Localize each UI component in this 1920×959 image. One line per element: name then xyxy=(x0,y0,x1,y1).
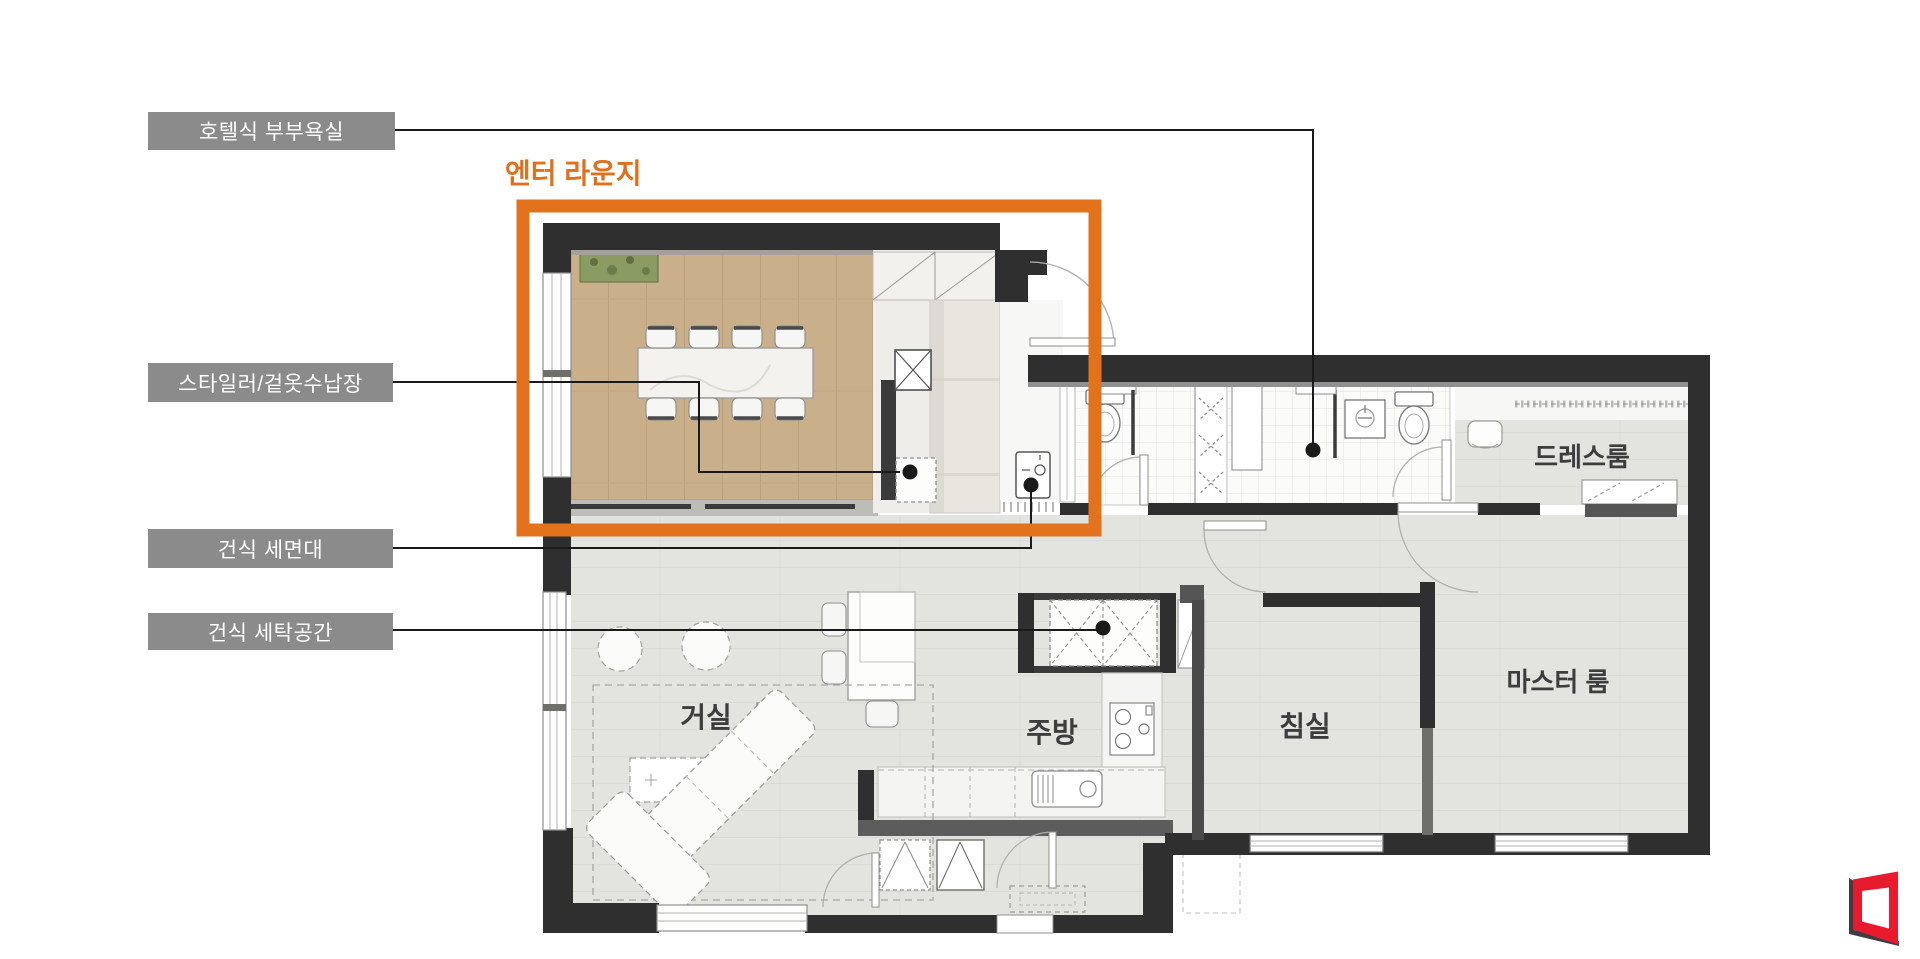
living-window xyxy=(543,592,566,830)
callout-point-dot xyxy=(1024,478,1039,493)
washbasin xyxy=(1345,400,1385,438)
callout-label-dry-laundry: 건식 세탁공간 xyxy=(148,613,393,650)
lounge-window xyxy=(543,273,571,477)
bottom-window xyxy=(657,905,807,931)
callout-label-hotel-couple-bath: 호텔식 부부욕실 xyxy=(148,112,395,150)
gas-stove xyxy=(1110,703,1154,755)
duct-shaft xyxy=(1195,382,1227,505)
callout-label-dry-washstand: 건식 세면대 xyxy=(148,529,393,568)
room-label-living: 거실 xyxy=(680,702,732,733)
callout-point-dot xyxy=(1306,443,1321,458)
styler-tile-zone xyxy=(873,250,1000,513)
callout-text: 건식 세면대 xyxy=(218,534,323,564)
styler-unit xyxy=(896,458,936,502)
callout-point-dot xyxy=(903,465,918,480)
bedroom-window xyxy=(1250,835,1383,852)
lounge-plant-box xyxy=(580,252,658,282)
guest-bathroom xyxy=(1060,382,1195,505)
room-label-bedroom: 침실 xyxy=(1279,711,1331,742)
room-label-kitchen: 주방 xyxy=(1026,717,1078,748)
callout-text: 호텔식 부부욕실 xyxy=(199,116,344,146)
red-frame-logo-icon xyxy=(1849,872,1899,947)
floorplan-page: 드레스룸 거실 주방 침실 마스터 룸 호텔식 부부욕실 스타일러/겉옷수납장 … xyxy=(0,0,1920,959)
callout-label-styler-closet: 스타일러/겉옷수납장 xyxy=(148,363,393,402)
lounge-title: 엔터 라운지 xyxy=(505,152,642,192)
master-window xyxy=(1495,835,1628,852)
callout-point-dot xyxy=(1096,621,1111,636)
room-label-dressroom: 드레스룸 xyxy=(1534,442,1630,472)
entrance-door-gap xyxy=(997,915,1053,933)
callout-text: 스타일러/겉옷수납장 xyxy=(178,368,363,398)
master-bathroom xyxy=(1227,382,1450,505)
room-label-master: 마스터 룸 xyxy=(1507,667,1610,697)
callout-text: 건식 세탁공간 xyxy=(208,617,333,647)
